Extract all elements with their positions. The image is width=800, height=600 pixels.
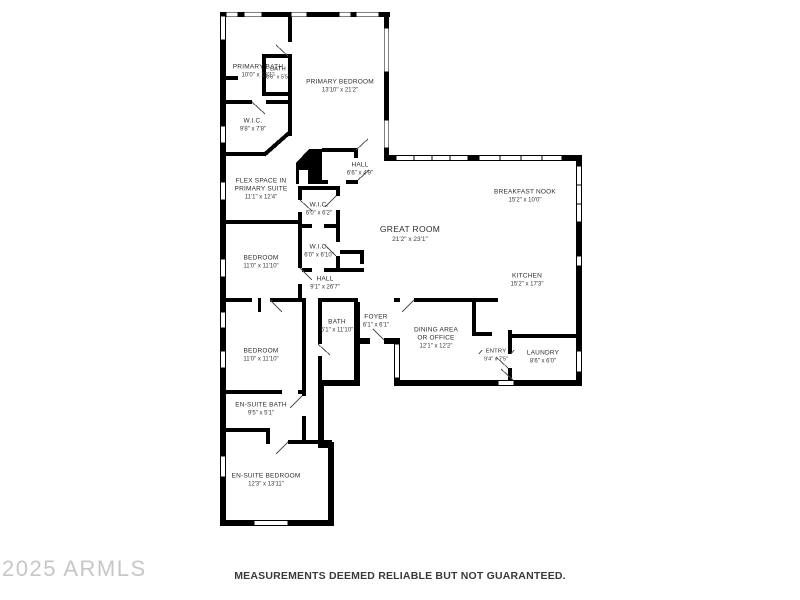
room-label-great-room: GREAT ROOM21'2" x 23'1" [380,224,440,244]
room-label-en-suite-bath: EN-SUITE BATH9'5" x 5'1" [235,402,287,419]
room-label-breakfast-nook: BREAKFAST NOOK15'2" x 10'0" [494,189,556,206]
disclaimer-text: MEASUREMENTS DEEMED RELIABLE BUT NOT GUA… [0,570,800,582]
room-label-laundry: LAUNDRY8'6" x 6'0" [527,350,559,367]
room-label-flex-space: FLEX SPACE IN PRIMARY SUITE11'1" x 12'4" [235,178,288,203]
room-label-kitchen: KITCHEN15'2" x 17'3" [511,273,544,290]
room-label-bedroom-2: BEDROOM11'0" x 11'10" [243,348,278,365]
room-label-bath-1: BATH8'0" x 5'5" [266,66,290,81]
room-labels: PRIMARY BATH10'0" x 13'1" BATH8'0" x 5'5… [0,0,800,600]
room-label-wic-primary: W.I.C.9'8" x 7'8" [240,118,266,135]
room-label-bath-2: BATH5'1" x 11'10" [321,319,353,336]
room-label-entry: ENTRY9'4" x 7'5" [484,348,508,363]
room-label-dining-area: DINING AREA OR OFFICE12'1" x 12'2" [414,327,458,352]
room-label-wic-2: W.I.C.6'0" x 6'10" [304,244,334,261]
room-label-primary-bedroom: PRIMARY BEDROOM13'10" x 21'2" [306,79,374,96]
room-label-hall-2: HALL9'1" x 26'7" [310,276,340,293]
room-label-en-suite-bedroom: EN-SUITE BEDROOM12'3" x 13'11" [232,473,301,490]
room-label-bedroom-1: BEDROOM11'0" x 11'10" [243,255,278,272]
room-label-foyer: FOYER6'1" x 6'1" [363,314,389,331]
room-label-hall-1: HALL6'6" x 4'9" [347,162,373,179]
room-label-wic-1: W.I.C.6'0" x 6'2" [306,202,332,219]
floor-plan-page: PRIMARY BATH10'0" x 13'1" BATH8'0" x 5'5… [0,0,800,600]
